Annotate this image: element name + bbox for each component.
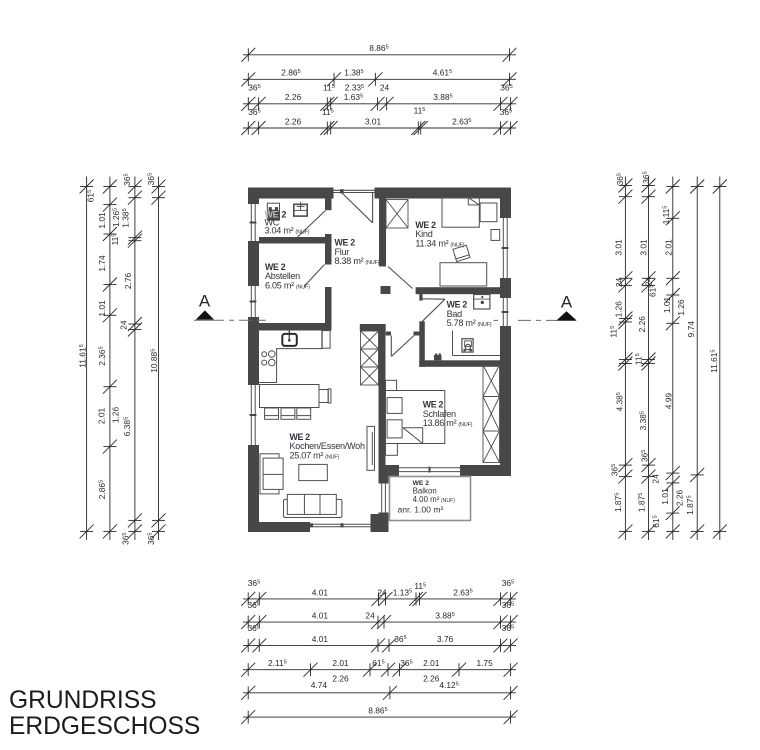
svg-text:ERDGESCHOSS: ERDGESCHOSS [9,713,200,740]
svg-text:11.615: 11.615 [709,349,719,372]
svg-text:9.74: 9.74 [686,321,696,338]
svg-text:1.01: 1.01 [660,488,670,505]
svg-text:2.26: 2.26 [285,116,302,126]
svg-text:2.26: 2.26 [285,92,302,102]
svg-text:1.01: 1.01 [97,300,107,317]
svg-text:4.01: 4.01 [312,634,329,644]
svg-text:2.01: 2.01 [664,239,674,256]
svg-text:A: A [199,292,211,311]
svg-text:2.26: 2.26 [637,316,647,333]
svg-text:1.01: 1.01 [662,297,672,314]
svg-text:24: 24 [614,278,624,288]
svg-text:2.01: 2.01 [423,658,440,668]
svg-text:3.01: 3.01 [639,239,649,256]
svg-text:2.76: 2.76 [123,273,133,290]
svg-text:4.01: 4.01 [312,587,329,597]
svg-text:GRUNDRISS: GRUNDRISS [9,687,157,714]
svg-text:3.76: 3.76 [437,634,454,644]
svg-text:anr. 1.00 m²: anr. 1.00 m² [398,504,444,514]
svg-text:2.26: 2.26 [674,490,684,507]
svg-text:4.01: 4.01 [312,611,329,621]
svg-text:24: 24 [650,474,660,484]
svg-text:A: A [561,293,573,312]
svg-text:1.74: 1.74 [97,255,107,272]
svg-text:24: 24 [365,611,375,621]
svg-text:1.26: 1.26 [111,407,121,424]
svg-text:2.26: 2.26 [423,674,440,684]
svg-text:11.615: 11.615 [78,344,88,367]
svg-text:24: 24 [380,83,390,93]
svg-text:4.74: 4.74 [311,680,328,690]
svg-text:1.01: 1.01 [97,212,107,229]
svg-text:4.99: 4.99 [664,393,674,410]
svg-text:2.01: 2.01 [97,408,107,425]
svg-text:1.26: 1.26 [676,299,686,316]
svg-text:2.26: 2.26 [332,674,349,684]
svg-text:2: 2 [282,209,287,219]
svg-text:10.885: 10.885 [149,349,159,373]
svg-text:24: 24 [119,320,129,330]
svg-text:3.01: 3.01 [365,116,382,126]
svg-text:24: 24 [377,587,387,597]
svg-text:2.01: 2.01 [332,658,349,668]
svg-text:1.75: 1.75 [476,658,493,668]
svg-text:3.01: 3.01 [614,239,624,256]
svg-text:1.26: 1.26 [614,301,624,318]
